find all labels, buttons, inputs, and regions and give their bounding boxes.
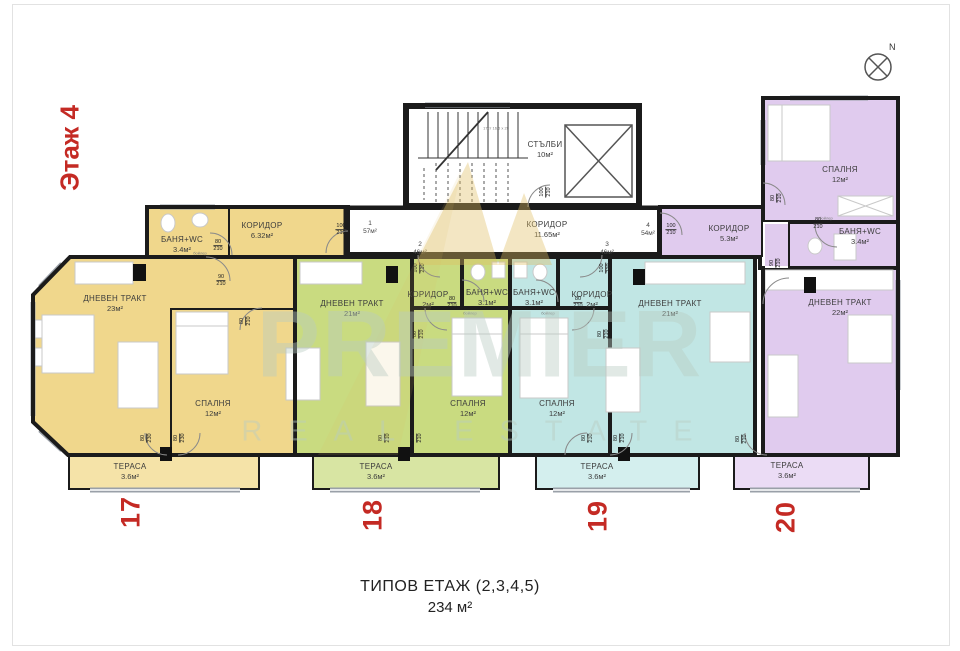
apt17-corridor-label: КОРИДОР6.32м² <box>242 221 283 241</box>
door-size-label: 80230 <box>581 433 595 442</box>
apt18-bedroom <box>412 308 510 455</box>
floor-plan-sheet: Этаж 4 N СТЪЛБИ10м² 17ст 16.5 x 28 КОРИД… <box>0 0 960 651</box>
apt17-terrace-label: ТЕРАСА3.6м² <box>114 462 147 482</box>
apt17-number: 17 <box>116 496 147 528</box>
fixture-note: бойлер <box>819 216 833 221</box>
fixture-note: бойлер <box>193 251 207 256</box>
apt20-number: 20 <box>771 501 802 533</box>
floor-label: Этаж 4 <box>55 105 86 191</box>
apt20-living <box>763 268 898 455</box>
sheet-caption: ТИПОВ ЕТАЖ (2,3,4,5) 234 м² <box>360 578 540 616</box>
apt20-corridor-label: КОРИДОР5.3м² <box>709 224 750 244</box>
fixture-note: бойлер <box>463 311 477 316</box>
main-corridor-label: КОРИДОР11.65м² <box>527 220 568 240</box>
door-size-label: 100210 <box>665 223 676 237</box>
door-size-label: 80210 <box>412 329 426 338</box>
apt19-terrace-label: ТЕРАСА3.6м² <box>581 462 614 482</box>
stair-hall <box>405 105 640 207</box>
apt17-bedroom-label: СПАЛНЯ12м² <box>195 399 231 419</box>
door-size-label: 80210 <box>378 433 392 442</box>
door-size-label: 100210 <box>335 223 346 237</box>
apt19-number: 19 <box>583 500 614 532</box>
fixture-note: бойлер <box>541 311 555 316</box>
door-size-label: 100210 <box>413 262 427 273</box>
door-size-label: 90210 <box>216 274 225 288</box>
unit-3-tag: 346м² <box>600 241 614 257</box>
apt20-terrace-label: ТЕРАСА3.6м² <box>771 461 804 481</box>
door-size-label: 80210 <box>213 239 222 253</box>
caption-area: 234 м² <box>360 599 540 616</box>
apt18-bedroom-label: СПАЛНЯ12м² <box>450 399 486 419</box>
stairs-note: 17ст 16.5 x 28 <box>483 126 509 131</box>
unit-2-tag: 246м² <box>413 241 427 257</box>
door-size-label: 80210 <box>597 329 611 338</box>
apt19-living-label: ДНЕВЕН ТРАКТ21м² <box>638 299 701 319</box>
apt20-bedroom <box>763 98 898 222</box>
door-size-label: 100210 <box>599 262 613 273</box>
apt17-terrace <box>68 455 260 490</box>
apt19-bedroom-label: СПАЛНЯ12м² <box>539 399 575 419</box>
door-size-label: 90210 <box>769 258 783 267</box>
apt19-bath-label: БАНЯ+WC3.1м² <box>513 288 555 308</box>
apt17-bedroom <box>170 308 295 455</box>
apt18-living-label: ДНЕВЕН ТРАКТ21м² <box>320 299 383 319</box>
stairs-label: СТЪЛБИ10м² <box>528 140 563 160</box>
compass-north-label: N <box>889 42 896 52</box>
apt18-living <box>295 257 412 455</box>
door-size-label: 80210 <box>770 193 784 202</box>
apt20-living-label: ДНЕВЕН ТРАКТ22м² <box>808 298 871 318</box>
apt19-terrace <box>535 455 700 490</box>
door-size-label: 80210 <box>447 296 456 310</box>
door-size-label: 100210 <box>539 186 553 197</box>
door-size-label: 80210 <box>573 296 582 310</box>
door-size-label: 80210 <box>735 434 749 443</box>
apt17-living-label: ДНЕВЕН ТРАКТ23м² <box>83 294 146 314</box>
apt18-corridor-label: КОРИДОР2м² <box>408 290 449 310</box>
door-size-label: 80210 <box>239 316 253 325</box>
caption-title: ТИПОВ ЕТАЖ (2,3,4,5) <box>360 578 540 596</box>
door-size-label: 80230 <box>140 433 154 442</box>
apt18-terrace <box>312 455 500 490</box>
apt19-living <box>610 257 755 455</box>
apt20-bedroom-label: СПАЛНЯ12м² <box>822 165 858 185</box>
unit-4-tag: 454м² <box>641 222 655 238</box>
door-size-label: 80210 <box>613 433 627 442</box>
apt20-bath-label: БАНЯ+WC3.4м² <box>839 227 881 247</box>
unit-1-tag: 157м² <box>363 220 377 236</box>
apt18-bath-label: БАНЯ+WC3.1м² <box>466 288 508 308</box>
apt19-bedroom <box>510 308 610 455</box>
apt18-terrace-label: ТЕРАСА3.6м² <box>360 462 393 482</box>
door-size-label: 80230 <box>173 433 187 442</box>
apt18-number: 18 <box>358 499 389 531</box>
door-size-label: 80210 <box>410 433 424 442</box>
